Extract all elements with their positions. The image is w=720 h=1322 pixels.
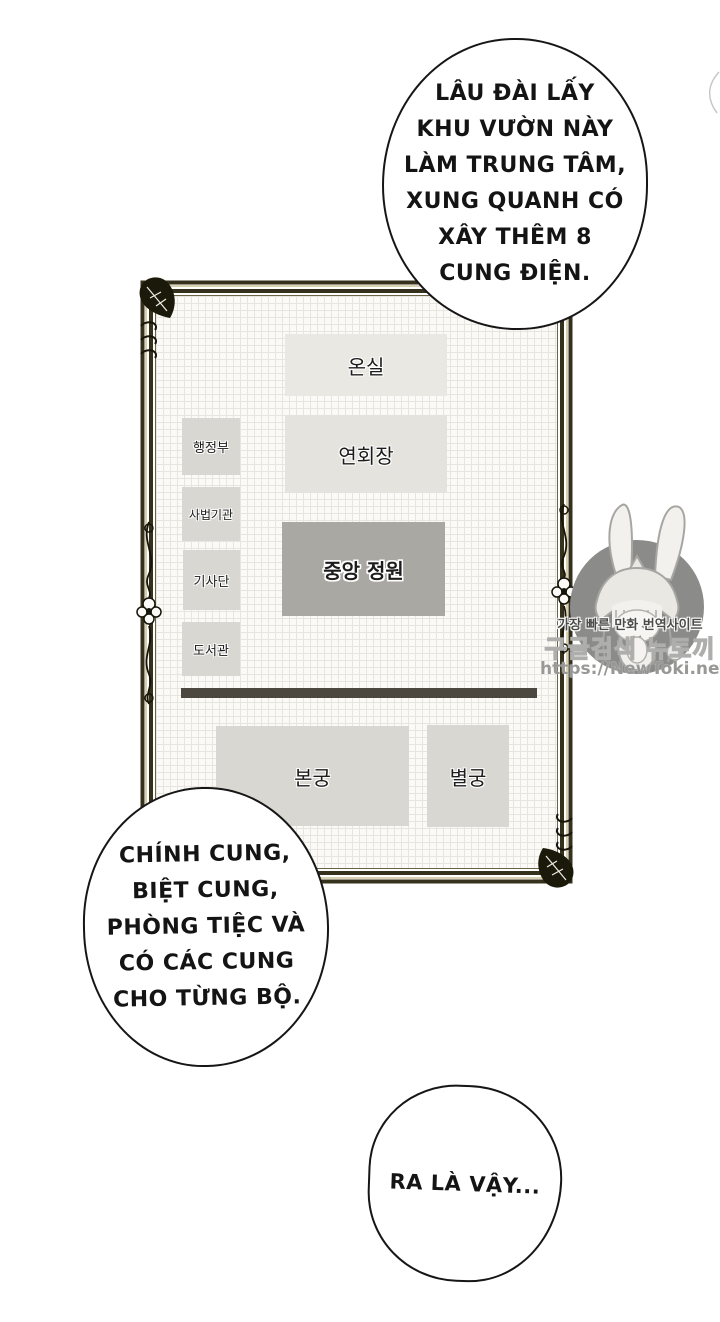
bubble-text-line: LÀM TRUNG TÂM, [404, 148, 626, 184]
speech-bubble-top: LÂU ĐÀI LẤY KHU VƯỜN NÀY LÀM TRUNG TÂM, … [382, 38, 648, 330]
bubble-text-line: CHO TỪNG BỘ. [113, 979, 302, 1018]
speech-bubble-bottom-right: RA LÀ VẬY... [365, 1082, 566, 1286]
bubble-text-line: RA LÀ VẬY... [389, 1163, 541, 1204]
bubble-text-line: CUNG ĐIỆN. [439, 256, 591, 292]
bubble-text-line: LÂU ĐÀI LẤY [435, 76, 595, 112]
comic-page: { "speech_bubbles": { "top": { "lines": … [0, 0, 720, 1322]
translator-watermark: 가장 빠른 만화 번역사이트 구글검색 뉴토끼 https://NewToki.… [540, 498, 720, 708]
bubble-text-line: BIỆT CUNG, [132, 872, 279, 911]
bubble-text-line: CHÍNH CUNG, [119, 836, 291, 875]
watermark-url: https://NewToki.net [540, 659, 720, 679]
bubble-text-line: KHU VƯỜN NÀY [417, 112, 614, 148]
bubble-text-line: XÂY THÊM 8 [438, 220, 592, 256]
bubble-text-line: CÓ CÁC CUNG [119, 943, 295, 982]
bubble-text-line: XUNG QUANH CÓ [406, 184, 624, 220]
bubble-text-line: PHÒNG TIỆC VÀ [106, 907, 305, 946]
partial-bubble-edge [704, 70, 720, 115]
